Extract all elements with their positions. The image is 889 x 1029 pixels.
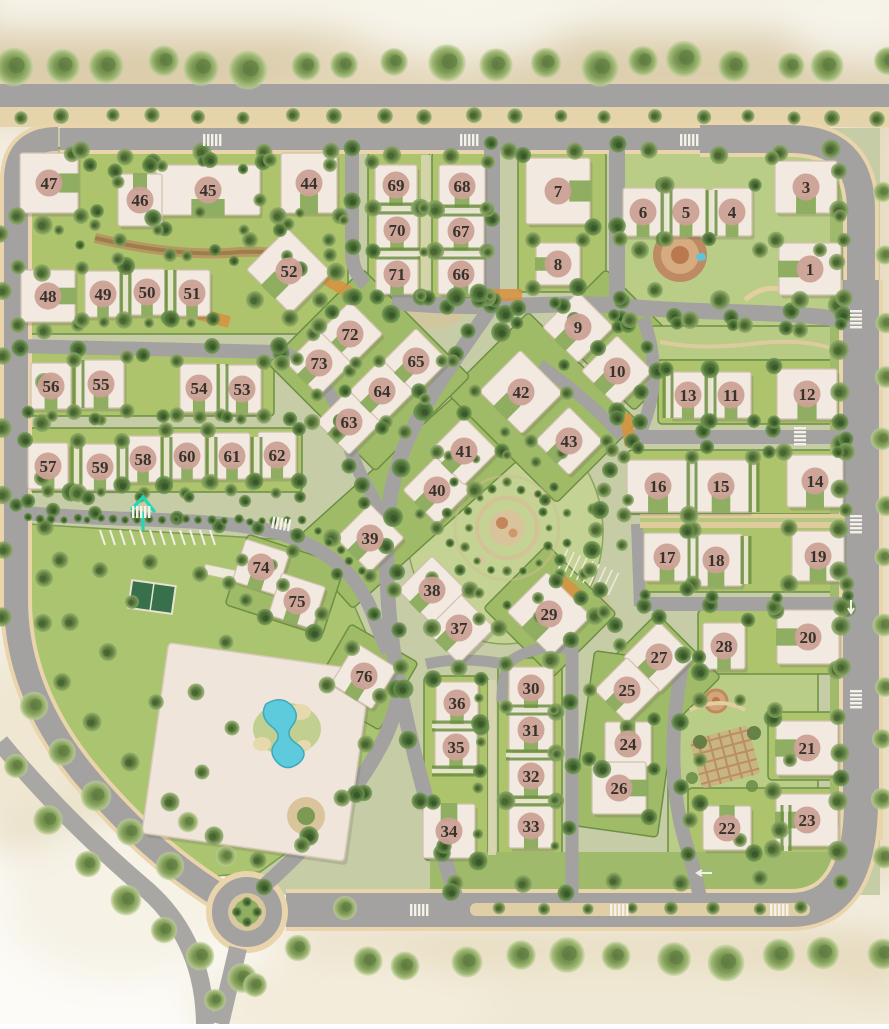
svg-text:73: 73: [311, 354, 328, 373]
svg-text:14: 14: [807, 472, 825, 491]
svg-text:24: 24: [620, 735, 638, 754]
svg-text:44: 44: [301, 174, 319, 193]
svg-text:42: 42: [513, 383, 530, 402]
svg-text:63: 63: [341, 413, 358, 432]
svg-text:6: 6: [639, 203, 648, 222]
svg-text:32: 32: [523, 767, 540, 786]
svg-text:35: 35: [448, 738, 465, 757]
svg-text:10: 10: [609, 362, 626, 381]
svg-text:57: 57: [40, 457, 58, 476]
svg-text:72: 72: [342, 325, 359, 344]
svg-text:43: 43: [561, 432, 578, 451]
svg-text:20: 20: [800, 628, 817, 647]
svg-text:12: 12: [799, 385, 816, 404]
svg-text:75: 75: [289, 592, 306, 611]
svg-text:37: 37: [451, 619, 469, 638]
svg-text:46: 46: [132, 191, 149, 210]
svg-text:58: 58: [135, 450, 152, 469]
svg-text:54: 54: [191, 379, 209, 398]
svg-text:64: 64: [374, 382, 392, 401]
svg-text:30: 30: [523, 679, 540, 698]
svg-text:29: 29: [541, 605, 558, 624]
svg-text:71: 71: [389, 265, 406, 284]
svg-text:52: 52: [281, 262, 298, 281]
svg-text:11: 11: [723, 386, 739, 405]
svg-text:45: 45: [200, 181, 217, 200]
svg-text:8: 8: [554, 255, 563, 274]
svg-text:27: 27: [651, 648, 669, 667]
svg-text:47: 47: [41, 174, 59, 193]
svg-text:28: 28: [716, 637, 733, 656]
svg-text:50: 50: [139, 283, 156, 302]
svg-text:67: 67: [453, 222, 471, 241]
svg-text:55: 55: [93, 375, 110, 394]
svg-text:49: 49: [95, 285, 112, 304]
svg-text:5: 5: [682, 203, 691, 222]
svg-text:15: 15: [713, 477, 730, 496]
svg-text:53: 53: [234, 380, 251, 399]
svg-text:41: 41: [456, 442, 473, 461]
svg-text:23: 23: [799, 811, 816, 830]
svg-text:22: 22: [719, 819, 736, 838]
svg-text:7: 7: [554, 182, 563, 201]
svg-text:19: 19: [810, 547, 827, 566]
svg-text:65: 65: [408, 352, 425, 371]
svg-text:40: 40: [429, 481, 446, 500]
svg-text:60: 60: [179, 447, 196, 466]
svg-text:38: 38: [424, 581, 441, 600]
svg-text:33: 33: [523, 817, 540, 836]
svg-text:76: 76: [356, 667, 373, 686]
svg-text:26: 26: [611, 779, 628, 798]
svg-text:3: 3: [802, 178, 811, 197]
svg-text:1: 1: [806, 260, 815, 279]
svg-text:34: 34: [441, 822, 459, 841]
svg-text:17: 17: [659, 548, 677, 567]
svg-text:16: 16: [650, 477, 667, 496]
svg-text:56: 56: [43, 377, 60, 396]
svg-text:69: 69: [388, 176, 405, 195]
svg-text:9: 9: [574, 318, 583, 337]
svg-text:36: 36: [449, 694, 466, 713]
svg-text:25: 25: [619, 681, 636, 700]
svg-text:4: 4: [728, 203, 737, 222]
svg-text:61: 61: [224, 447, 241, 466]
svg-text:31: 31: [523, 721, 540, 740]
svg-text:62: 62: [269, 446, 286, 465]
svg-text:66: 66: [453, 265, 470, 284]
svg-text:13: 13: [680, 386, 697, 405]
svg-text:48: 48: [40, 287, 57, 306]
svg-text:74: 74: [253, 558, 271, 577]
svg-text:68: 68: [454, 177, 471, 196]
svg-text:70: 70: [389, 221, 406, 240]
svg-text:51: 51: [184, 284, 201, 303]
svg-text:21: 21: [799, 739, 816, 758]
svg-text:39: 39: [362, 529, 379, 548]
svg-text:18: 18: [708, 551, 725, 570]
svg-text:59: 59: [92, 458, 109, 477]
